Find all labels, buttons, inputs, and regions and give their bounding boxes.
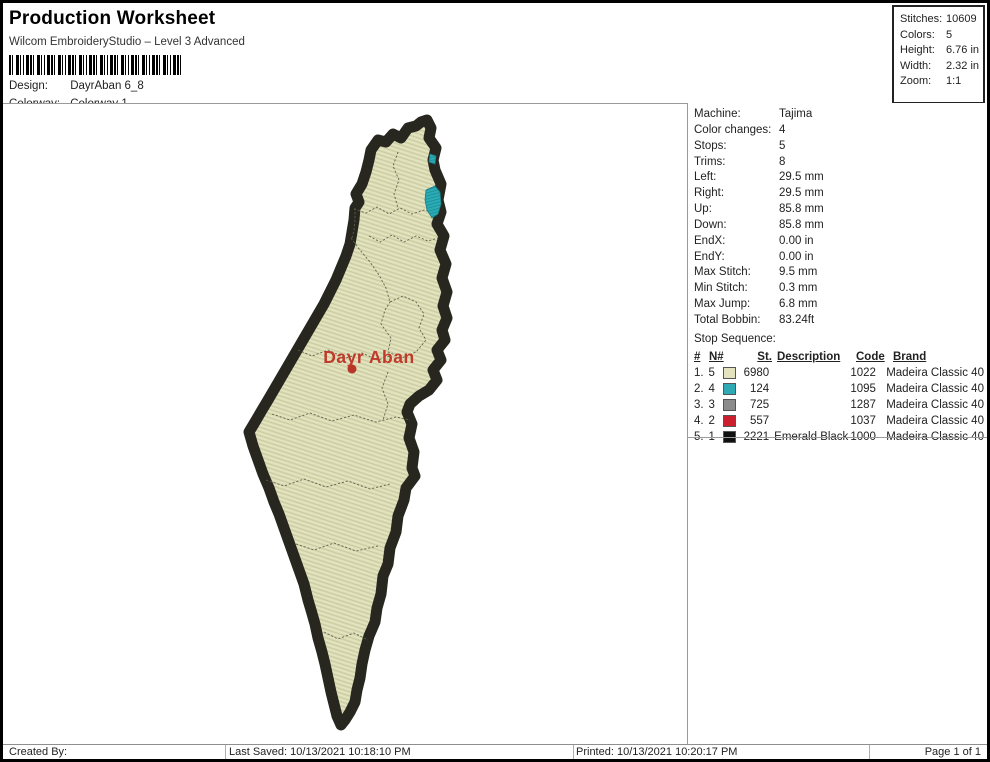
thread-stitch-count: 124 — [739, 383, 769, 395]
header: Production Worksheet Wilcom EmbroiderySt… — [9, 8, 245, 111]
barcode-image — [9, 55, 183, 75]
thread-color-swatch — [723, 383, 736, 395]
info-label: Down: — [694, 218, 779, 234]
stat-row-width: Width:2.32 in — [900, 59, 983, 75]
info-label: Left: — [694, 170, 779, 186]
map-outline — [249, 120, 447, 725]
thread-swatch-cell — [723, 399, 739, 411]
col-header-brand: Brand — [887, 351, 984, 363]
info-value: 0.00 in — [779, 235, 814, 247]
thread-swatch-cell — [723, 367, 739, 379]
info-row-right: Right:29.5 mm — [694, 186, 987, 202]
info-label: Up: — [694, 202, 779, 218]
machine-info-panel: Machine:Tajima Color changes:4 Stops:5 T… — [687, 103, 987, 744]
info-value: Tajima — [779, 108, 812, 120]
thread-code: 1287 — [850, 399, 880, 411]
col-header-n: N# — [709, 351, 724, 363]
info-row-stops: Stops:5 — [694, 139, 987, 155]
info-label: Right: — [694, 186, 779, 202]
thread-stitch-count: 725 — [739, 399, 769, 411]
info-label: Min Stitch: — [694, 281, 779, 297]
thread-swatch-cell — [723, 415, 739, 427]
info-row-up: Up:85.8 mm — [694, 202, 987, 218]
thread-stop-number: 4. — [694, 415, 708, 427]
thread-row: 4. 2 557 1037 Madeira Classic 40 — [694, 413, 984, 429]
info-row-machine: Machine:Tajima — [694, 107, 987, 123]
thread-brand: Madeira Classic 40 — [880, 399, 984, 411]
page-number-cell: Page 1 of 1 — [925, 746, 981, 759]
thread-color-swatch — [723, 399, 736, 411]
info-value: 0.00 in — [779, 251, 814, 263]
page-title: Production Worksheet — [9, 8, 245, 30]
info-label: Max Stitch: — [694, 265, 779, 281]
col-header-code: Code — [856, 351, 887, 363]
stat-value: 1:1 — [946, 75, 961, 87]
printed-cell: Printed: 10/13/2021 10:20:17 PM — [576, 746, 737, 759]
design-canvas: Dayr Aban — [3, 104, 687, 744]
thread-stop-number: 3. — [694, 399, 708, 411]
stat-row-height: Height:6.76 in — [900, 43, 983, 59]
info-value: 9.5 mm — [779, 266, 817, 278]
info-label: Total Bobbin: — [694, 313, 779, 329]
design-value: DayrAban 6_8 — [70, 80, 144, 92]
stat-label: Height: — [900, 43, 946, 59]
info-row-max-jump: Max Jump:6.8 mm — [694, 297, 987, 313]
footer-divider — [225, 745, 226, 760]
design-row: Design: DayrAban 6_8 — [9, 80, 245, 93]
stat-label: Width: — [900, 59, 946, 75]
info-row-endy: EndY:0.00 in — [694, 250, 987, 266]
stat-label: Zoom: — [900, 74, 946, 90]
info-value: 6.8 mm — [779, 298, 817, 310]
thread-code: 1022 — [850, 367, 880, 379]
thread-stop-number: 2. — [694, 383, 708, 395]
footer: Created By: Last Saved: 10/13/2021 10:18… — [3, 744, 987, 759]
thread-brand: Madeira Classic 40 — [880, 367, 984, 379]
stop-table-header: # N# St. Description Code Brand — [694, 349, 984, 365]
info-row-total-bobbin: Total Bobbin:83.24ft — [694, 313, 987, 329]
thread-stitch-count: 6980 — [739, 367, 769, 379]
thread-stitch-count: 557 — [739, 415, 769, 427]
thread-swatch-cell — [723, 383, 739, 395]
info-label: EndX: — [694, 234, 779, 250]
thread-needle-number: 3 — [708, 399, 722, 411]
app-subtitle: Wilcom EmbroideryStudio – Level 3 Advanc… — [9, 36, 245, 48]
created-by-cell: Created By: — [9, 746, 67, 759]
design-label: Design: — [9, 80, 67, 93]
info-label: Max Jump: — [694, 297, 779, 313]
design-stats-box: Stitches:10609 Colors:5 Height:6.76 in W… — [892, 5, 985, 104]
thread-row: 3. 3 725 1287 Madeira Classic 40 — [694, 397, 984, 413]
thread-brand: Madeira Classic 40 — [880, 415, 984, 427]
info-value: 4 — [779, 124, 785, 136]
thread-code: 1037 — [850, 415, 880, 427]
info-value: 85.8 mm — [779, 203, 824, 215]
info-row-left: Left:29.5 mm — [694, 170, 987, 186]
stat-label: Colors: — [900, 28, 946, 44]
thread-color-swatch — [723, 367, 736, 379]
thread-code: 1095 — [850, 383, 880, 395]
stat-row-colors: Colors:5 — [900, 28, 983, 44]
info-value: 29.5 mm — [779, 171, 824, 183]
col-header-st: St. — [741, 351, 772, 363]
stat-value: 10609 — [946, 13, 977, 25]
production-worksheet-page: Production Worksheet Wilcom EmbroiderySt… — [0, 0, 990, 762]
thread-brand: Madeira Classic 40 — [880, 383, 984, 395]
thread-color-swatch — [723, 415, 736, 427]
stop-sequence-label: Stop Sequence: — [694, 331, 987, 347]
place-label: Dayr Aban — [323, 347, 414, 367]
stop-table-bottom-divider — [687, 437, 987, 438]
col-header-num: # — [694, 351, 709, 363]
thread-row: 2. 4 124 1095 Madeira Classic 40 — [694, 381, 984, 397]
info-row-max-stitch: Max Stitch:9.5 mm — [694, 265, 987, 281]
info-value: 29.5 mm — [779, 187, 824, 199]
thread-stop-number: 1. — [694, 367, 708, 379]
stat-value: 2.32 in — [946, 60, 979, 72]
info-label: Machine: — [694, 107, 779, 123]
info-label: Color changes: — [694, 123, 779, 139]
info-row-trims: Trims:8 — [694, 155, 987, 171]
info-label: Stops: — [694, 139, 779, 155]
stat-row-stitches: Stitches:10609 — [900, 12, 983, 28]
stat-row-zoom: Zoom:1:1 — [900, 74, 983, 90]
last-saved-cell: Last Saved: 10/13/2021 10:18:10 PM — [229, 746, 411, 759]
info-label: EndY: — [694, 250, 779, 266]
stop-sequence-table: # N# St. Description Code Brand 1. 5 698… — [694, 349, 984, 445]
info-row-min-stitch: Min Stitch:0.3 mm — [694, 281, 987, 297]
info-value: 85.8 mm — [779, 219, 824, 231]
thread-needle-number: 2 — [708, 415, 722, 427]
info-value: 8 — [779, 156, 785, 168]
info-value: 0.3 mm — [779, 282, 817, 294]
thread-needle-number: 5 — [708, 367, 722, 379]
info-value: 5 — [779, 140, 785, 152]
col-header-description: Description — [772, 351, 856, 363]
embroidery-preview: Dayr Aban — [238, 112, 453, 732]
thread-needle-number: 4 — [708, 383, 722, 395]
info-label: Trims: — [694, 155, 779, 171]
stat-label: Stitches: — [900, 12, 946, 28]
stat-value: 5 — [946, 29, 952, 41]
footer-divider — [869, 745, 870, 760]
stat-value: 6.76 in — [946, 44, 979, 56]
thread-row: 1. 5 6980 1022 Madeira Classic 40 — [694, 365, 984, 381]
info-row-color-changes: Color changes:4 — [694, 123, 987, 139]
info-row-down: Down:85.8 mm — [694, 218, 987, 234]
info-row-endx: EndX:0.00 in — [694, 234, 987, 250]
info-value: 83.24ft — [779, 314, 814, 326]
footer-divider — [573, 745, 574, 760]
